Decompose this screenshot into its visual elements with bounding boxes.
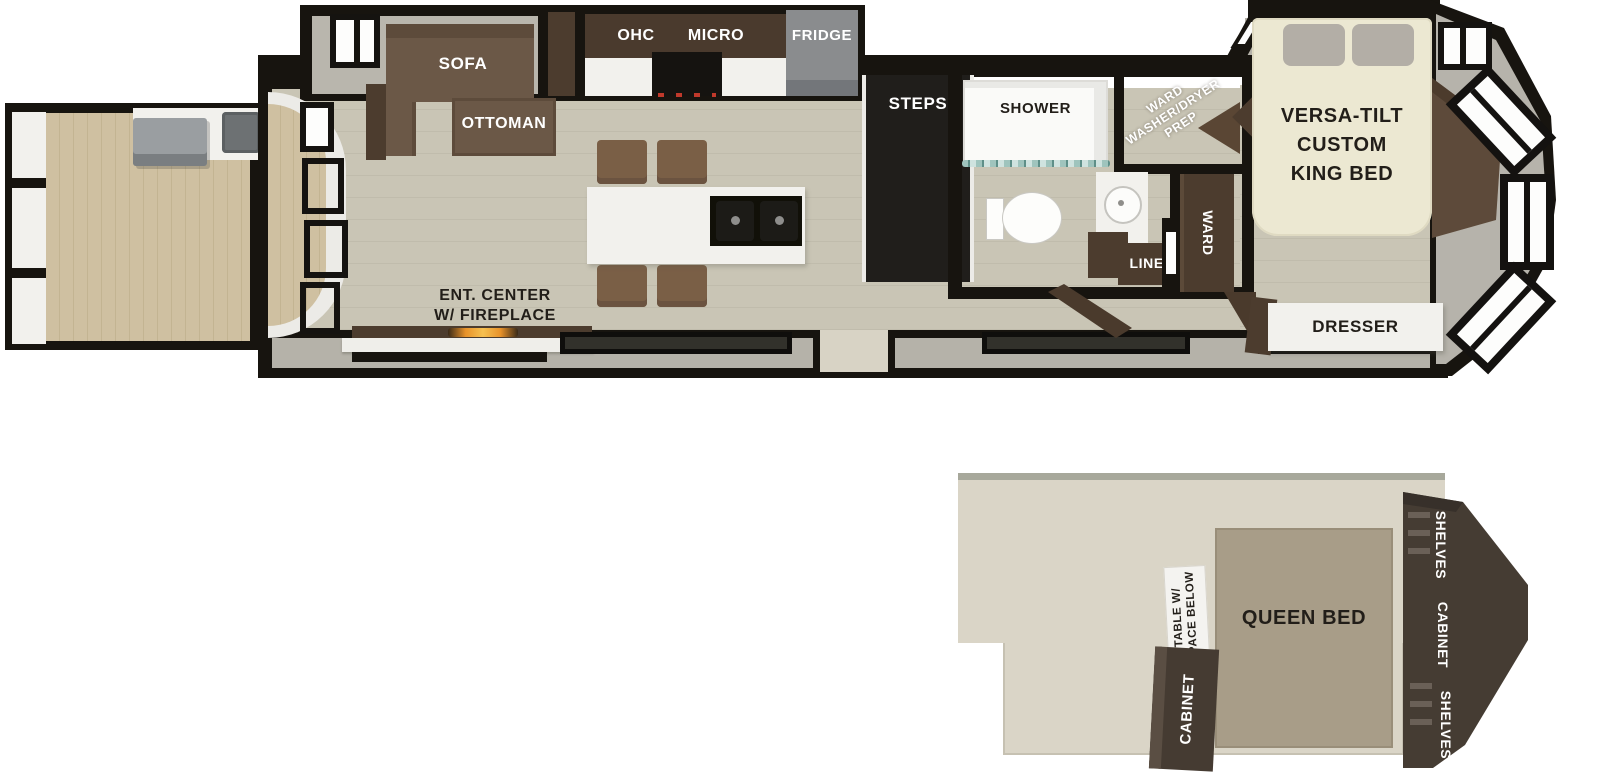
rv-floorplan: OHC MICRO FRIDGE SOFA OTTOMAN ENT. CENTE…	[0, 0, 1600, 774]
loft-cabinet: CABINET	[1149, 646, 1219, 771]
loft-cabinet-label: CABINET	[1175, 649, 1201, 770]
loft-shelves-bottom-label: SHELVES	[1436, 665, 1454, 774]
queen-bed-label: QUEEN BED	[1215, 528, 1393, 708]
